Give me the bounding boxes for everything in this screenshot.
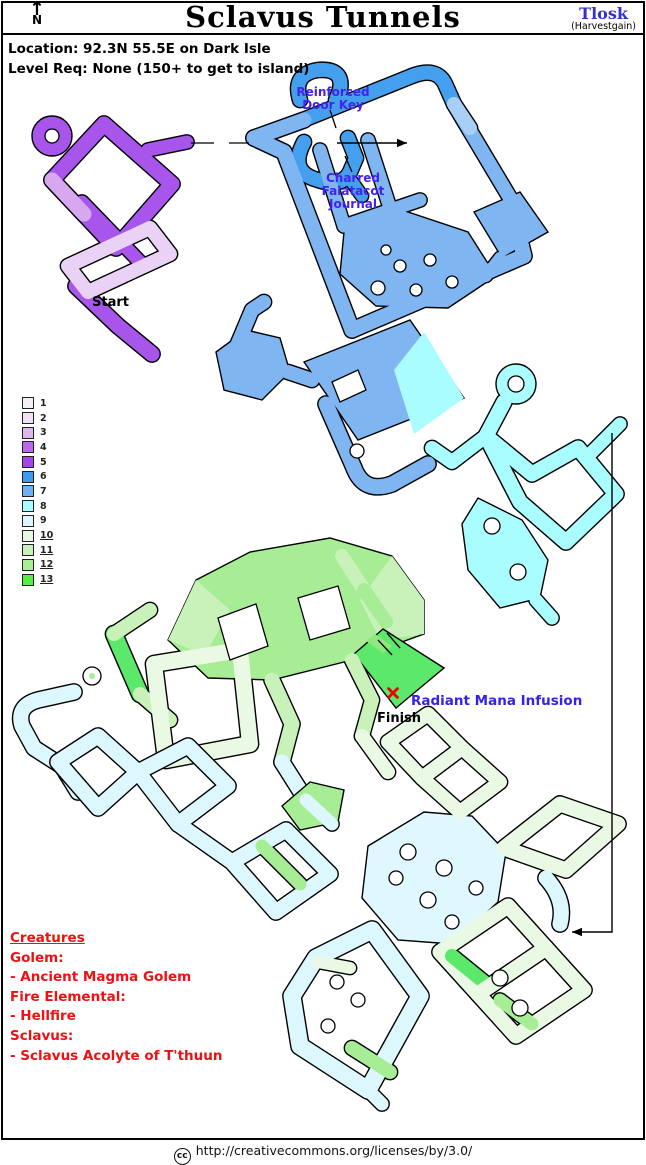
legend-swatch xyxy=(22,412,34,424)
legend-level-number: 11 xyxy=(40,545,53,556)
legend-swatch xyxy=(22,530,34,542)
legend-row-level-1: 1 xyxy=(22,396,53,411)
legend-row-level-8: 8 xyxy=(22,499,53,514)
legend-row-level-11: 11 xyxy=(22,543,53,558)
legend-swatch xyxy=(22,500,34,512)
legend-swatch xyxy=(22,574,34,586)
level-req-text: Level Req: None (150+ to get to island) xyxy=(8,61,309,77)
label-charred-falatacot-journal: Charred Falatacot Journal xyxy=(314,172,392,211)
label-reinforced-door-key: Reinforced Door Key xyxy=(294,86,372,112)
legend-level-number: 5 xyxy=(40,457,47,468)
legend-swatch xyxy=(22,427,34,439)
page-title: Sclavus Tunnels xyxy=(0,0,646,34)
label-finish: Finish xyxy=(377,711,421,726)
author-credit: Tlosk (Harvestgain) xyxy=(571,4,636,32)
creature-line: Golem: xyxy=(10,949,222,969)
legend-swatch xyxy=(22,559,34,571)
legend-row-level-5: 5 xyxy=(22,455,53,470)
creatures-list: Creatures Golem: - Ancient Magma GolemFi… xyxy=(10,929,222,1066)
legend-level-number: 4 xyxy=(40,442,47,453)
legend-level-number: 12 xyxy=(40,559,53,570)
arrowhead-icon xyxy=(572,928,582,936)
legend-row-level-2: 2 xyxy=(22,411,53,426)
legend-swatch xyxy=(22,441,34,453)
legend-swatch xyxy=(22,456,34,468)
legend-swatch xyxy=(22,471,34,483)
label-radiant-mana-infusion: Radiant Mana Infusion xyxy=(411,693,582,709)
creatures-heading: Creatures xyxy=(10,929,222,949)
legend-row-level-13: 13 xyxy=(22,572,53,587)
legend-level-number: 2 xyxy=(40,413,47,424)
author-chapter: (Harvestgain) xyxy=(571,21,636,32)
legend-level-number: 10 xyxy=(40,530,53,541)
location-text: Location: 92.3N 55.5E on Dark Isle xyxy=(8,41,271,57)
label-start: Start xyxy=(92,295,129,310)
license-footer: cchttp://creativecommons.org/licenses/by… xyxy=(0,1143,646,1165)
creature-line: - Hellfire xyxy=(10,1007,222,1027)
legend-row-level-7: 7 xyxy=(22,484,53,499)
legend-level-number: 8 xyxy=(40,501,47,512)
legend-level-number: 6 xyxy=(40,471,47,482)
creature-line: Fire Elemental: xyxy=(10,988,222,1008)
level-legend: 12345678910111213 xyxy=(22,396,53,587)
creature-line: - Ancient Magma Golem xyxy=(10,968,222,988)
legend-swatch xyxy=(22,485,34,497)
legend-row-level-9: 9 xyxy=(22,514,53,529)
legend-level-number: 7 xyxy=(40,486,47,497)
legend-level-number: 9 xyxy=(40,515,47,526)
creative-commons-icon: cc xyxy=(174,1148,191,1165)
map-section-start-purple xyxy=(32,116,187,354)
map-section-green-top xyxy=(21,538,444,800)
legend-swatch xyxy=(22,515,34,527)
legend-level-number: 3 xyxy=(40,427,47,438)
legend-row-level-3: 3 xyxy=(22,425,53,440)
legend-swatch xyxy=(22,397,34,409)
license-url: http://creativecommons.org/licenses/by/3… xyxy=(196,1143,472,1158)
legend-row-level-10: 10 xyxy=(22,528,53,543)
creature-line: - Sclavus Acolyte of T'thuun xyxy=(10,1047,222,1067)
legend-row-level-12: 12 xyxy=(22,558,53,573)
legend-level-number: 13 xyxy=(40,574,53,585)
arrowhead-icon xyxy=(397,139,407,147)
legend-swatch xyxy=(22,544,34,556)
legend-level-number: 1 xyxy=(40,398,47,409)
legend-row-level-6: 6 xyxy=(22,469,53,484)
creature-line: Sclavus: xyxy=(10,1027,222,1047)
legend-row-level-4: 4 xyxy=(22,440,53,455)
